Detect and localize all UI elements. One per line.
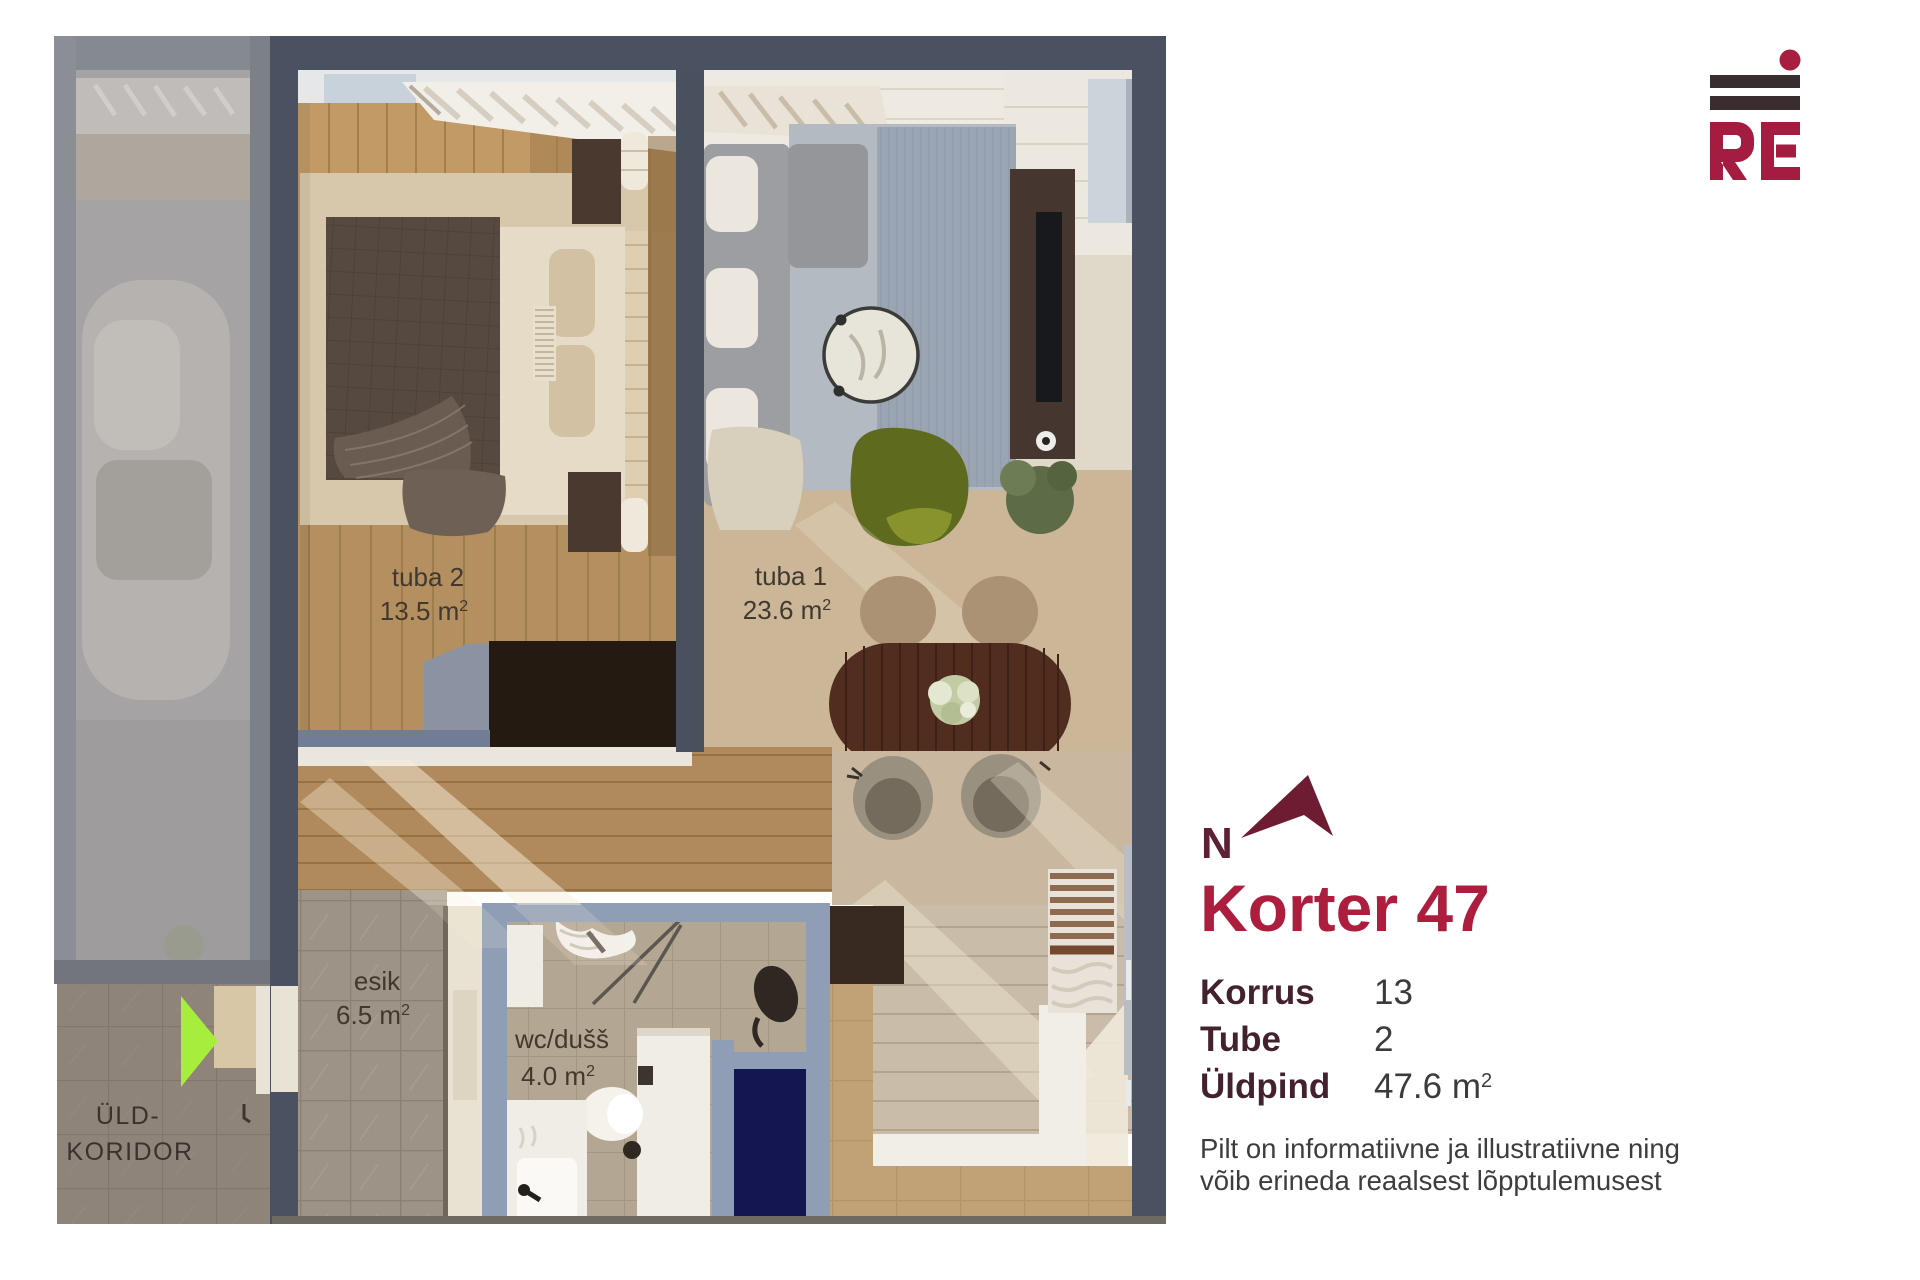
svg-text:13: 13: [1374, 973, 1413, 1012]
svg-text:13.5 m2: 13.5 m2: [380, 596, 469, 626]
svg-text:ÜLD-: ÜLD-: [96, 1102, 160, 1130]
svg-text:4.0 m2: 4.0 m2: [521, 1061, 595, 1091]
svg-text:Korrus: Korrus: [1200, 973, 1315, 1012]
svg-text:KORIDOR: KORIDOR: [66, 1138, 193, 1166]
svg-text:tuba 2: tuba 2: [392, 562, 464, 592]
svg-text:tuba 1: tuba 1: [755, 561, 827, 591]
svg-text:N: N: [1201, 819, 1233, 868]
svg-text:Korter 47: Korter 47: [1200, 871, 1490, 945]
svg-text:esik: esik: [354, 966, 401, 996]
svg-text:Tube: Tube: [1200, 1020, 1281, 1059]
svg-text:võib erineda reaalsest lõpptul: võib erineda reaalsest lõpptulemusest: [1200, 1165, 1662, 1196]
svg-text:wc/dušš: wc/dušš: [514, 1024, 609, 1054]
svg-text:Pilt on informatiivne ja illus: Pilt on informatiivne ja illustratiivne …: [1200, 1133, 1680, 1164]
svg-text:23.6 m2: 23.6 m2: [743, 595, 832, 625]
svg-text:2: 2: [1374, 1020, 1393, 1059]
svg-text:47.6 m2: 47.6 m2: [1374, 1067, 1492, 1106]
svg-text:Üldpind: Üldpind: [1200, 1067, 1330, 1106]
svg-text:6.5 m2: 6.5 m2: [336, 1000, 410, 1030]
